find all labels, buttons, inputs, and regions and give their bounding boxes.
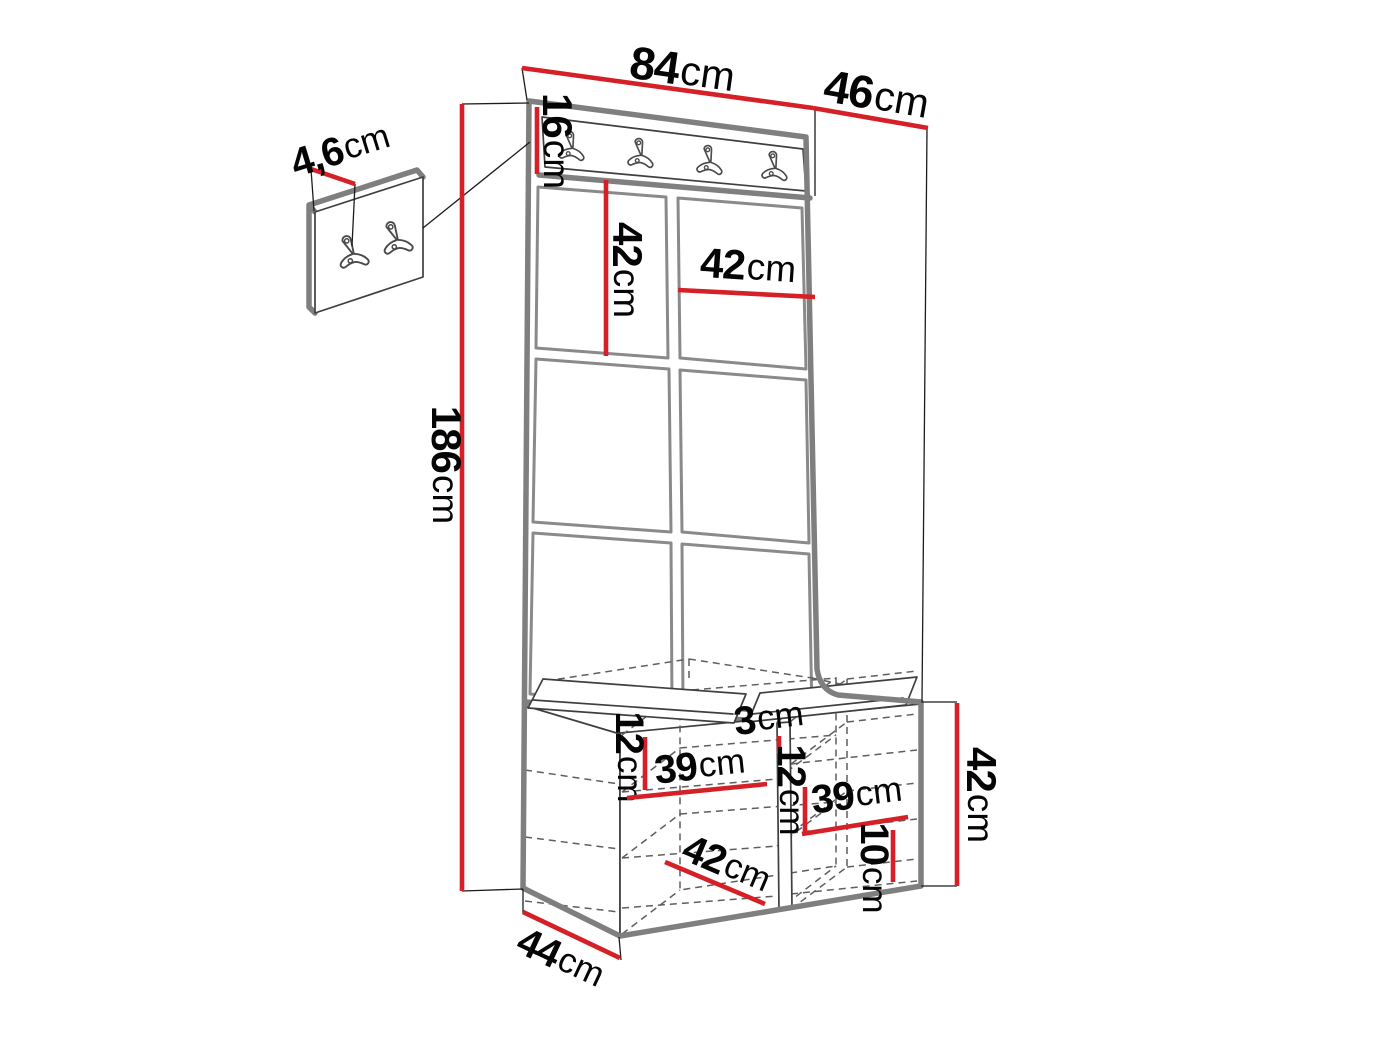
detail-leader-line: [423, 142, 530, 228]
upholstered-panel: [680, 370, 809, 543]
dim-detail-thickness-label: 4,6cm: [285, 114, 395, 186]
upholstered-panel: [533, 359, 671, 532]
bench-left-side: [523, 706, 620, 936]
dim-rail-height-label: 16cm: [534, 93, 581, 189]
dim-right-shelf-drop-label: 12cm: [769, 744, 813, 835]
dim-left-shelf-drop-label: 12cm: [607, 711, 651, 802]
dim-bottom-gap-label: 10cm: [852, 822, 896, 913]
dim-top-width-label: 84cm: [627, 36, 739, 102]
diagram-canvas: 4,6cm 84cm 46cm 16cm 42cm 42cm: [0, 0, 1384, 1038]
dim-bench-height-label: 42cm: [958, 747, 1005, 843]
dim-total-height-label: 186cm: [423, 406, 470, 524]
wall-panel-detail: 4,6cm: [285, 114, 530, 313]
furniture-dimension-diagram: 4,6cm 84cm 46cm 16cm 42cm 42cm: [0, 0, 1384, 1038]
dim-panel-height-label: 42cm: [604, 222, 651, 318]
